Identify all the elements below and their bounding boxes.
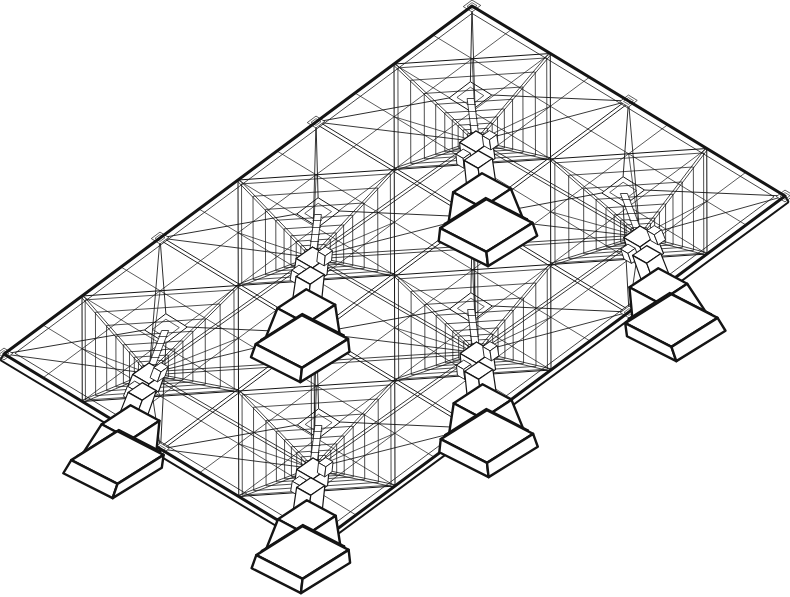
drawing-canvas [0, 0, 790, 597]
space-frame-canopy-wireframe [0, 0, 790, 597]
